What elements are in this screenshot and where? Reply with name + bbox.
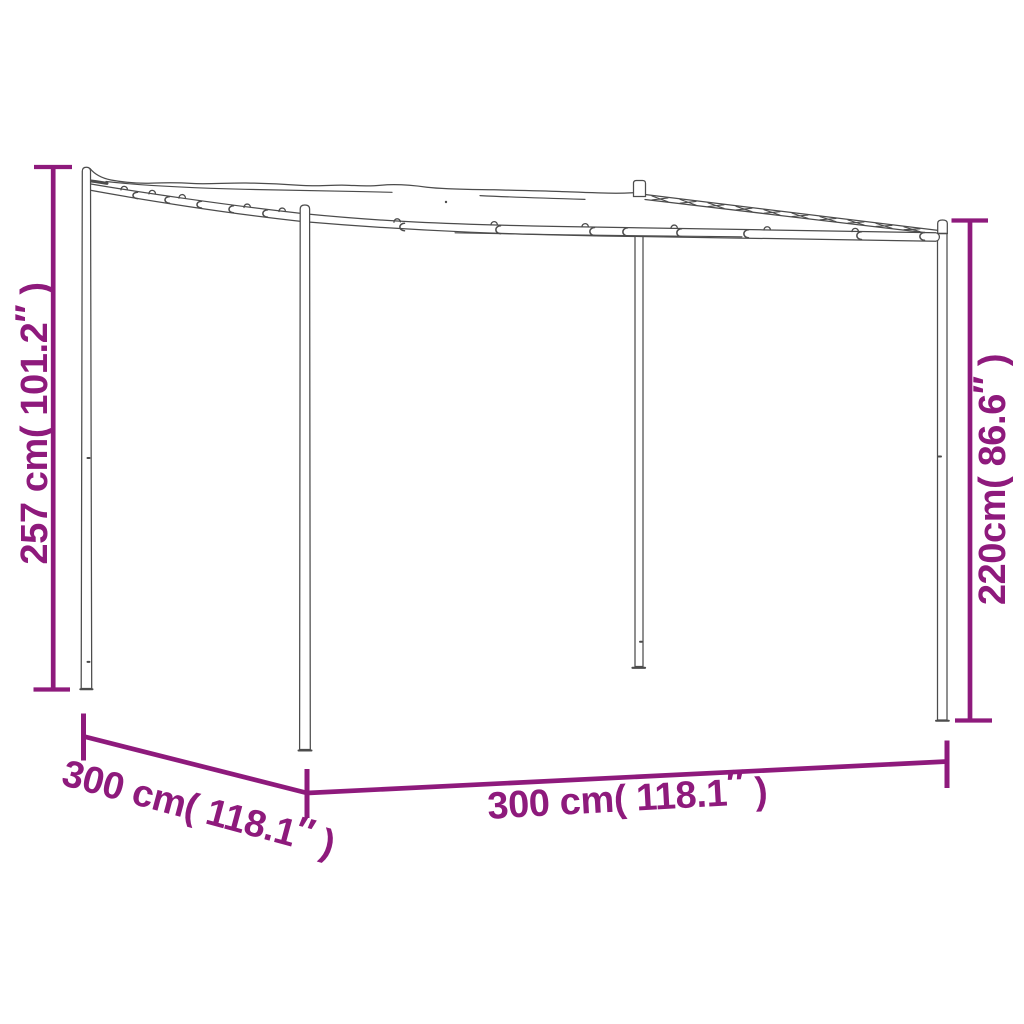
svg-text:220cm( 86.6″ ): 220cm( 86.6″ ) [967, 354, 1015, 605]
svg-text:257 cm( 101.2″ ): 257 cm( 101.2″ ) [9, 282, 57, 564]
